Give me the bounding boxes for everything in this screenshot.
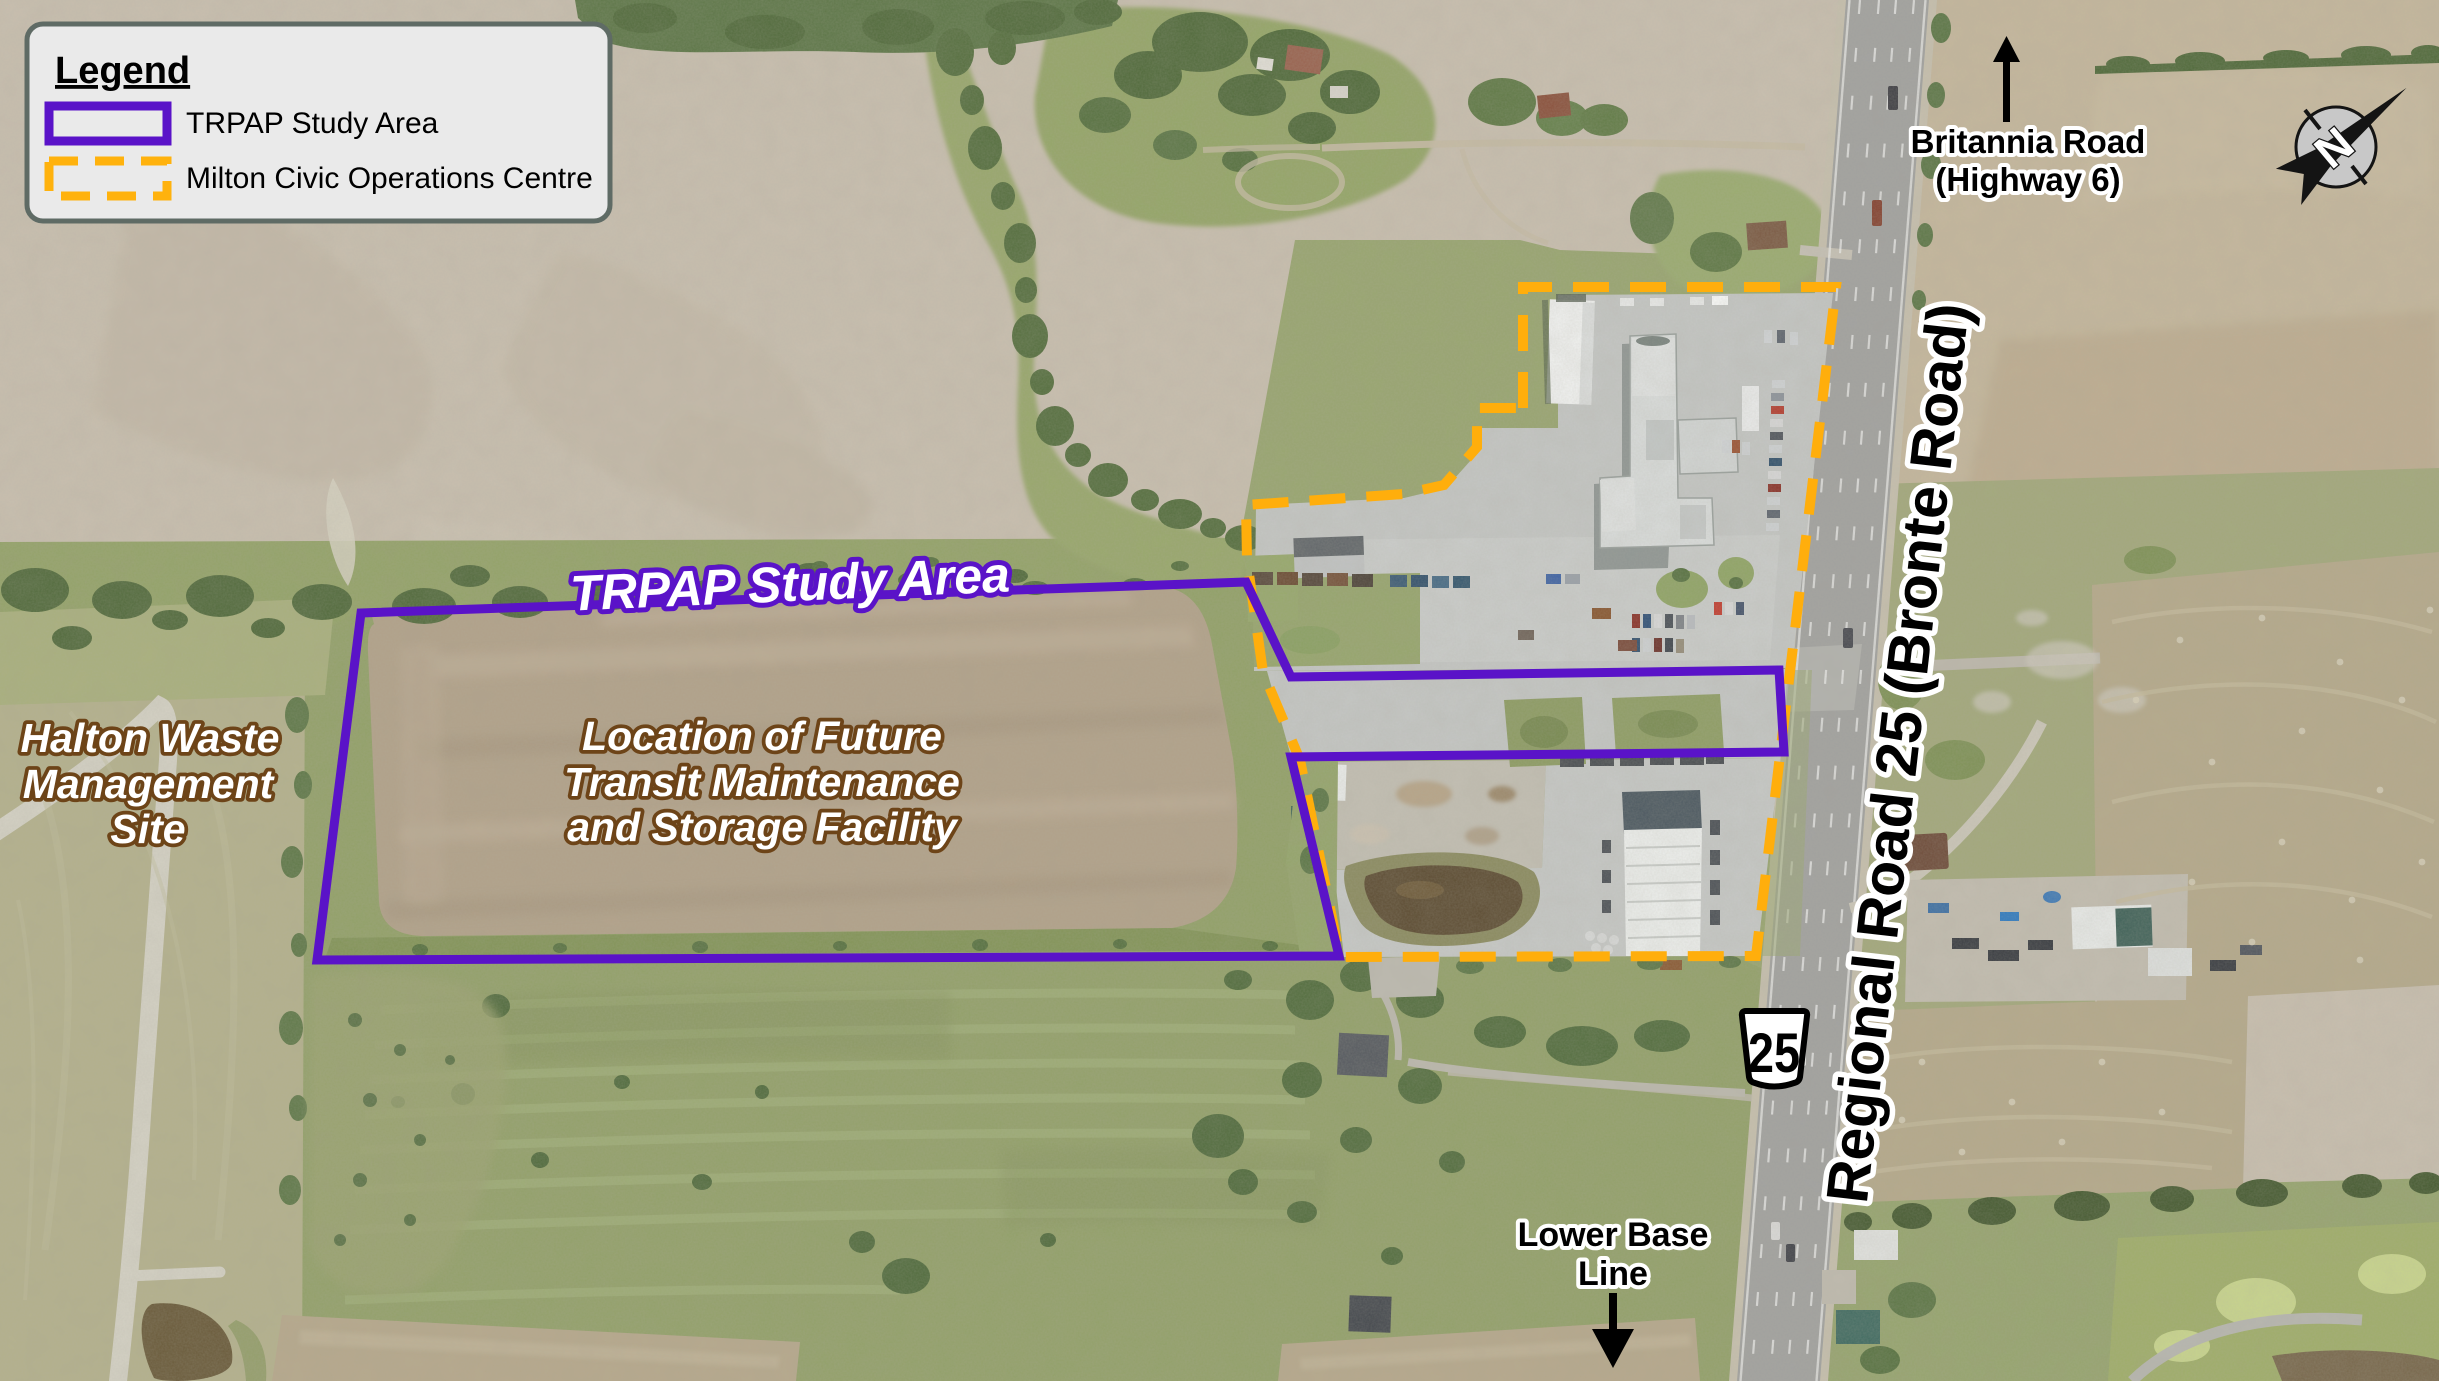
svg-text:Lower Base: Lower Base xyxy=(1518,1216,1709,1254)
svg-text:(Highway 6): (Highway 6) xyxy=(1935,161,2120,198)
svg-text:Line: Line xyxy=(1578,1255,1648,1293)
svg-text:Legend: Legend xyxy=(55,50,190,92)
svg-text:Britannia Road: Britannia Road xyxy=(1911,123,2146,160)
svg-text:25: 25 xyxy=(1748,1021,1800,1084)
svg-text:Halton Waste: Halton Waste xyxy=(21,715,280,761)
svg-text:and Storage Facility: and Storage Facility xyxy=(567,804,959,850)
svg-text:Site: Site xyxy=(110,806,185,852)
svg-text:Management: Management xyxy=(23,761,276,807)
svg-text:TRPAP Study Area: TRPAP Study Area xyxy=(186,107,439,140)
svg-text:Milton Civic Operations Centre: Milton Civic Operations Centre xyxy=(186,162,593,195)
svg-text:Transit Maintenance: Transit Maintenance xyxy=(564,759,960,805)
svg-text:Location of Future: Location of Future xyxy=(582,713,942,759)
